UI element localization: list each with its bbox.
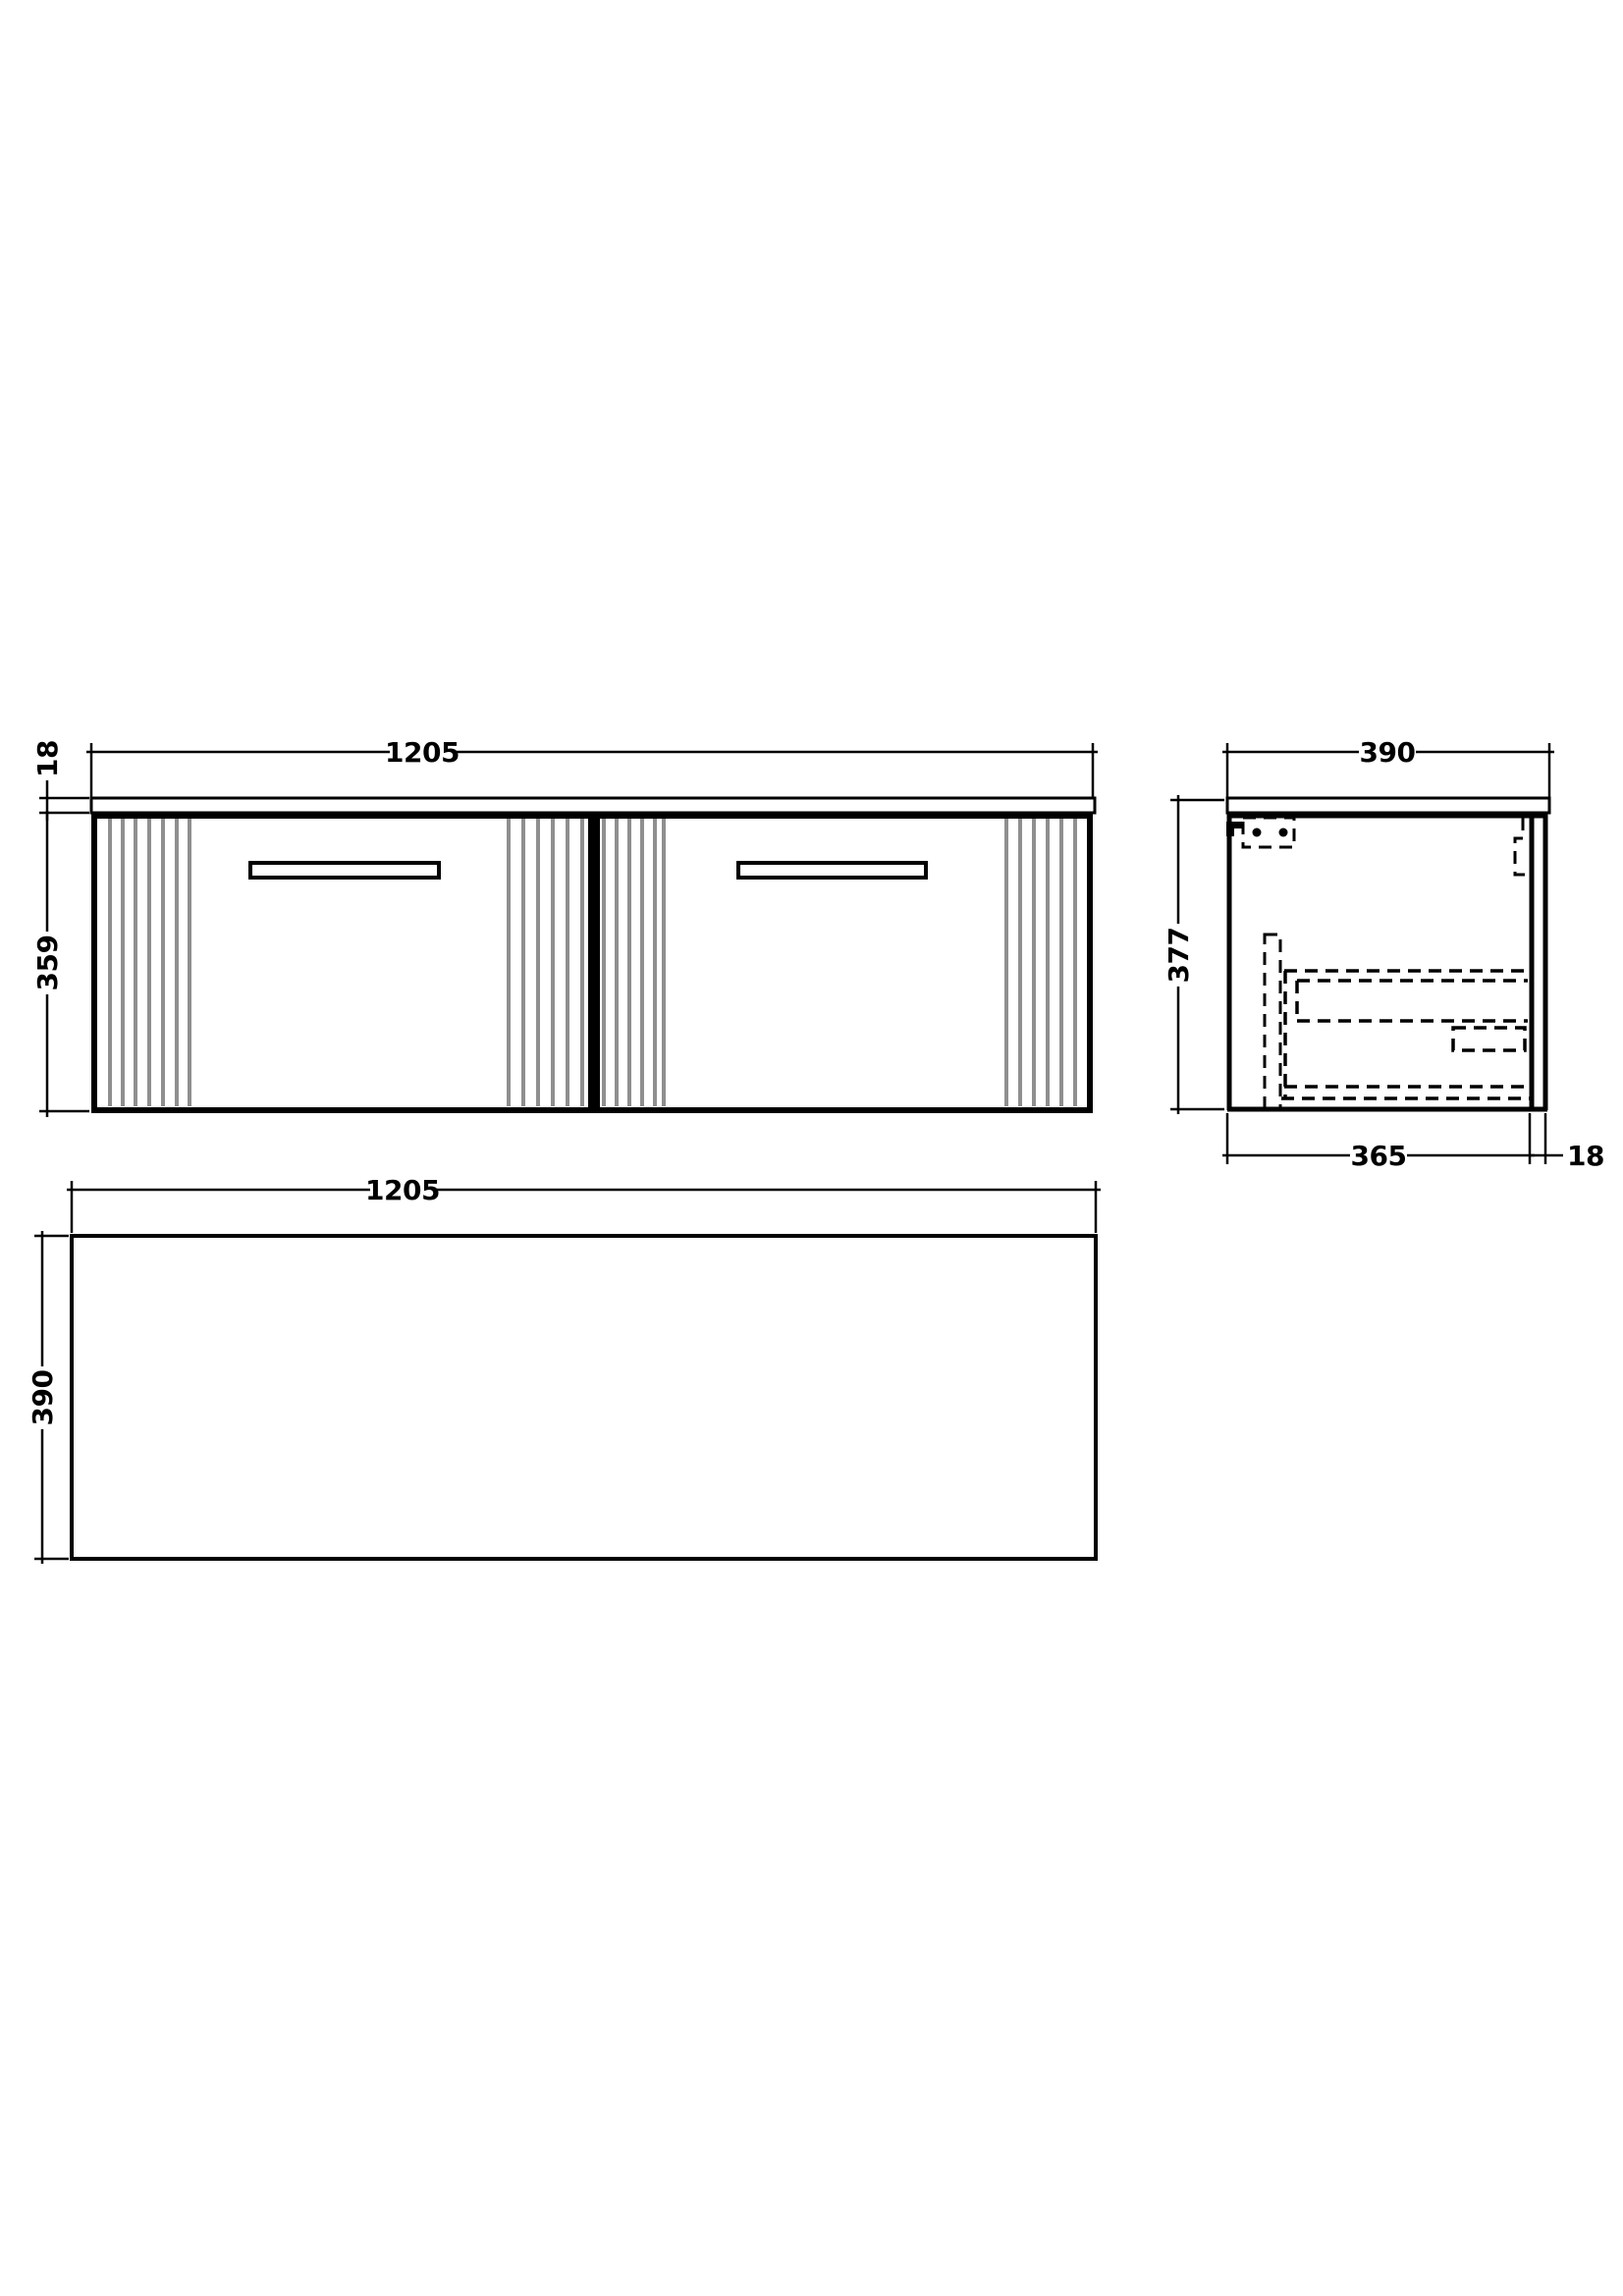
- dim-label-front-width: 1205: [385, 736, 460, 769]
- front-countertop: [91, 798, 1095, 813]
- dim-label-front-height: 359: [31, 935, 64, 991]
- plan-countertop: [72, 1236, 1096, 1559]
- dim-label-plan-depth: 390: [27, 1370, 59, 1426]
- screw-hole: [1279, 828, 1288, 837]
- left-drawer-handle: [250, 863, 439, 878]
- side-countertop: [1227, 798, 1549, 813]
- rotated-label: 377: [1163, 924, 1195, 987]
- dim-label-side-carcass: 365: [1351, 1140, 1407, 1172]
- front-fluting-left: [110, 819, 189, 1106]
- rotated-label: 390: [27, 1366, 59, 1429]
- rotated-label: 18: [31, 737, 64, 780]
- screw-hole: [1253, 828, 1262, 837]
- right-drawer-handle: [738, 863, 926, 878]
- dim-label-side-back: 18: [1567, 1140, 1604, 1172]
- rotated-label: 359: [31, 932, 64, 994]
- vanity-drawing-canvas: 1205 18 359: [0, 0, 1623, 2296]
- front-centre-divider: [588, 815, 600, 1110]
- dim-label-side-height: 377: [1163, 928, 1195, 984]
- dim-label-side-depth: 390: [1360, 736, 1416, 769]
- technical-drawing-page: 1205 18 359: [0, 0, 1623, 2296]
- dim-label-plan-width: 1205: [365, 1174, 440, 1206]
- dim-label-front-counter: 18: [31, 740, 64, 777]
